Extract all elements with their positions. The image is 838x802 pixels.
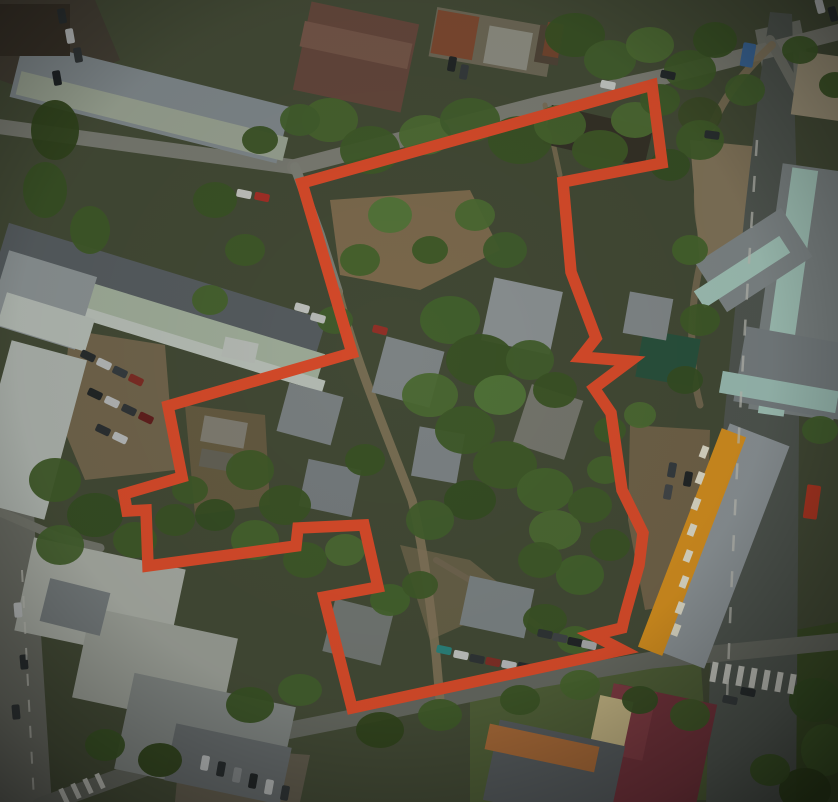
- vignette: [0, 0, 838, 802]
- aerial-photo: [0, 0, 838, 802]
- aerial-scene: [0, 0, 838, 802]
